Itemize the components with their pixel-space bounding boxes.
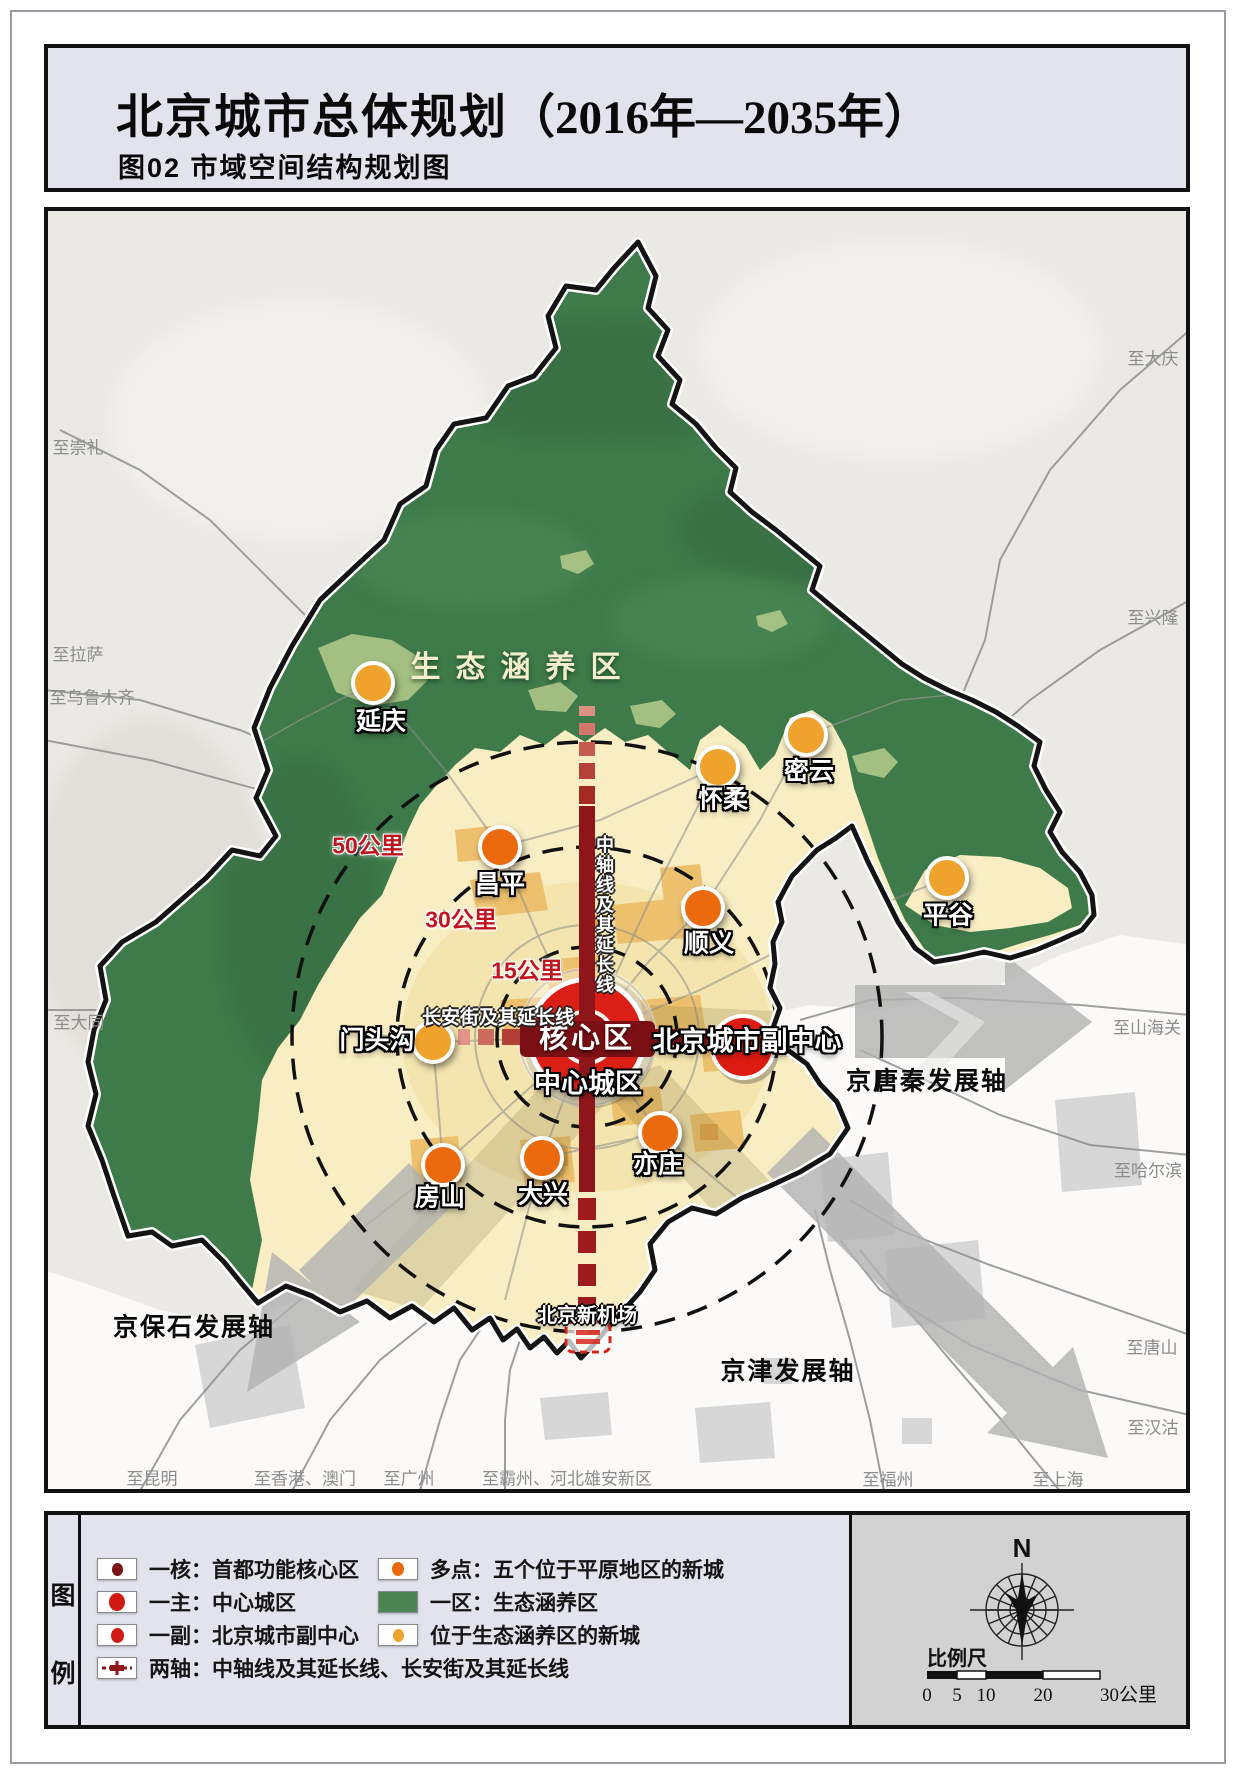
scale-tick: 30公里 — [1100, 1685, 1157, 1706]
map-label: 京津发展轴 — [720, 1360, 855, 1385]
map-label: 亦庄 — [633, 1153, 683, 1178]
map-label: 北京城市副中心 — [653, 1029, 842, 1056]
legend-item: 一区：生态涵养区 — [378, 1587, 598, 1617]
scale-tick: 20 — [1034, 1685, 1053, 1706]
city-marker-亦庄 — [638, 1111, 682, 1155]
legend-item-label: 位于生态涵养区的新城 — [430, 1620, 640, 1650]
legend-item-label: 一核：首都功能核心区 — [149, 1554, 359, 1584]
legend-item-label: 一区：生态涵养区 — [430, 1587, 598, 1617]
map-label: 生态涵养区 — [411, 653, 636, 683]
map-label: 至大庆 — [1128, 351, 1179, 368]
legend-panel: 图 例 一核：首都功能核心区一主：中心城区一副：北京城市副中心两轴：中轴线及其延… — [44, 1511, 1190, 1729]
scale-tick: 10 — [977, 1685, 996, 1706]
legend-char-li: 例 — [48, 1654, 78, 1690]
map-label: 至霸州、河北雄安新区 — [482, 1471, 652, 1488]
basemap-graphic — [44, 207, 1190, 1493]
legend-item-label: 两轴：中轴线及其延长线、长安街及其延长线 — [149, 1653, 569, 1683]
city-marker-延庆 — [351, 661, 395, 705]
legend-item-label: 多点：五个位于平原地区的新城 — [430, 1554, 724, 1584]
map-label: 怀柔 — [698, 788, 748, 813]
legend-item: 一核：首都功能核心区 — [97, 1554, 359, 1584]
map-label: 至广州 — [384, 1471, 435, 1488]
map-label: 中心城区 — [534, 1071, 642, 1098]
scale-tick: 5 — [952, 1685, 962, 1706]
map-label: 至唐山 — [1127, 1340, 1178, 1357]
map-label: 至大同 — [54, 1015, 105, 1032]
legend-item-label: 一副：北京城市副中心 — [149, 1620, 359, 1650]
legend-item: 一主：中心城区 — [97, 1587, 296, 1617]
map-panel: 生态涵养区延庆密云怀柔平谷昌平顺义门头沟房山大兴亦庄核心区中心城区北京城市副中心… — [44, 207, 1190, 1493]
page-subtitle: 图02 市域空间结构规划图 — [118, 146, 452, 185]
city-marker-大兴 — [520, 1136, 564, 1180]
map-label: 长安街及其延长线 — [422, 1009, 574, 1028]
compass-rose: N 比例尺 05102030公里 — [852, 1515, 1190, 1725]
city-marker-房山 — [421, 1143, 465, 1187]
map-label: 京唐秦发展轴 — [846, 1070, 1008, 1095]
map-label: 至兴隆 — [1128, 610, 1179, 627]
map-label: 顺义 — [684, 932, 734, 957]
map-label: 核心区 — [539, 1025, 635, 1054]
scale-ticks: 05102030公里 — [922, 1685, 1157, 1706]
map-label: 30公里 — [425, 909, 497, 932]
map-label: 大兴 — [518, 1183, 568, 1208]
map-label: 密云 — [784, 760, 834, 785]
title-block: 北京城市总体规划（2016年—2035年） 图02 市域空间结构规划图 — [44, 44, 1190, 192]
map-label: 至山海关 — [1113, 1020, 1181, 1037]
title-text: 北京城市总体规划 — [116, 90, 508, 143]
map-label: 北京新机场 — [537, 1306, 637, 1326]
city-marker-密云 — [784, 713, 828, 757]
legend-item: 多点：五个位于平原地区的新城 — [378, 1554, 724, 1584]
title-years: （2016年—2035年） — [508, 92, 931, 144]
legend-item: 一副：北京城市副中心 — [97, 1620, 359, 1650]
map-label: 中轴线及其延长线 — [595, 835, 613, 995]
map-label: 至汉沽 — [1128, 1420, 1179, 1437]
map-label: 15公里 — [491, 960, 563, 983]
map-label: 至拉萨 — [53, 647, 104, 664]
map-label: 至昆明 — [127, 1471, 178, 1488]
page-title: 北京城市总体规划（2016年—2035年） — [116, 78, 931, 147]
map-label: 至哈尔滨 — [1114, 1163, 1182, 1180]
map-label: 至上海 — [1033, 1472, 1084, 1489]
map-label: 50公里 — [332, 835, 404, 858]
map-label: 至福州 — [863, 1472, 914, 1489]
map-label: 房山 — [415, 1186, 465, 1211]
compass-cell: N 比例尺 05102030公里 — [849, 1515, 1186, 1725]
map-label: 至崇礼 — [53, 440, 104, 457]
map-label: 门头沟 — [339, 1029, 414, 1054]
map-label: 延庆 — [356, 710, 406, 735]
city-marker-昌平 — [478, 825, 522, 869]
legend-side-label: 图 例 — [48, 1515, 81, 1725]
city-marker-平谷 — [925, 856, 969, 900]
city-marker-怀柔 — [696, 745, 740, 789]
scale-tick: 0 — [922, 1685, 932, 1706]
scale-bar — [927, 1671, 1100, 1679]
legend-item: 位于生态涵养区的新城 — [378, 1620, 640, 1650]
city-marker-顺义 — [681, 886, 725, 930]
legend-item-label: 一主：中心城区 — [149, 1587, 296, 1617]
map-label: 至乌鲁木齐 — [50, 690, 135, 707]
map-label: 至香港、澳门 — [254, 1471, 356, 1488]
legend-item: 两轴：中轴线及其延长线、长安街及其延长线 — [97, 1653, 569, 1683]
map-label: 平谷 — [923, 904, 973, 929]
legend-items: 一核：首都功能核心区一主：中心城区一副：北京城市副中心两轴：中轴线及其延长线、长… — [81, 1515, 849, 1725]
north-label: N — [1013, 1533, 1032, 1563]
map-label: 昌平 — [475, 873, 525, 898]
scale-label: 比例尺 — [927, 1646, 987, 1670]
map-label: 京保石发展轴 — [113, 1316, 275, 1341]
legend-char-tu: 图 — [48, 1576, 78, 1612]
